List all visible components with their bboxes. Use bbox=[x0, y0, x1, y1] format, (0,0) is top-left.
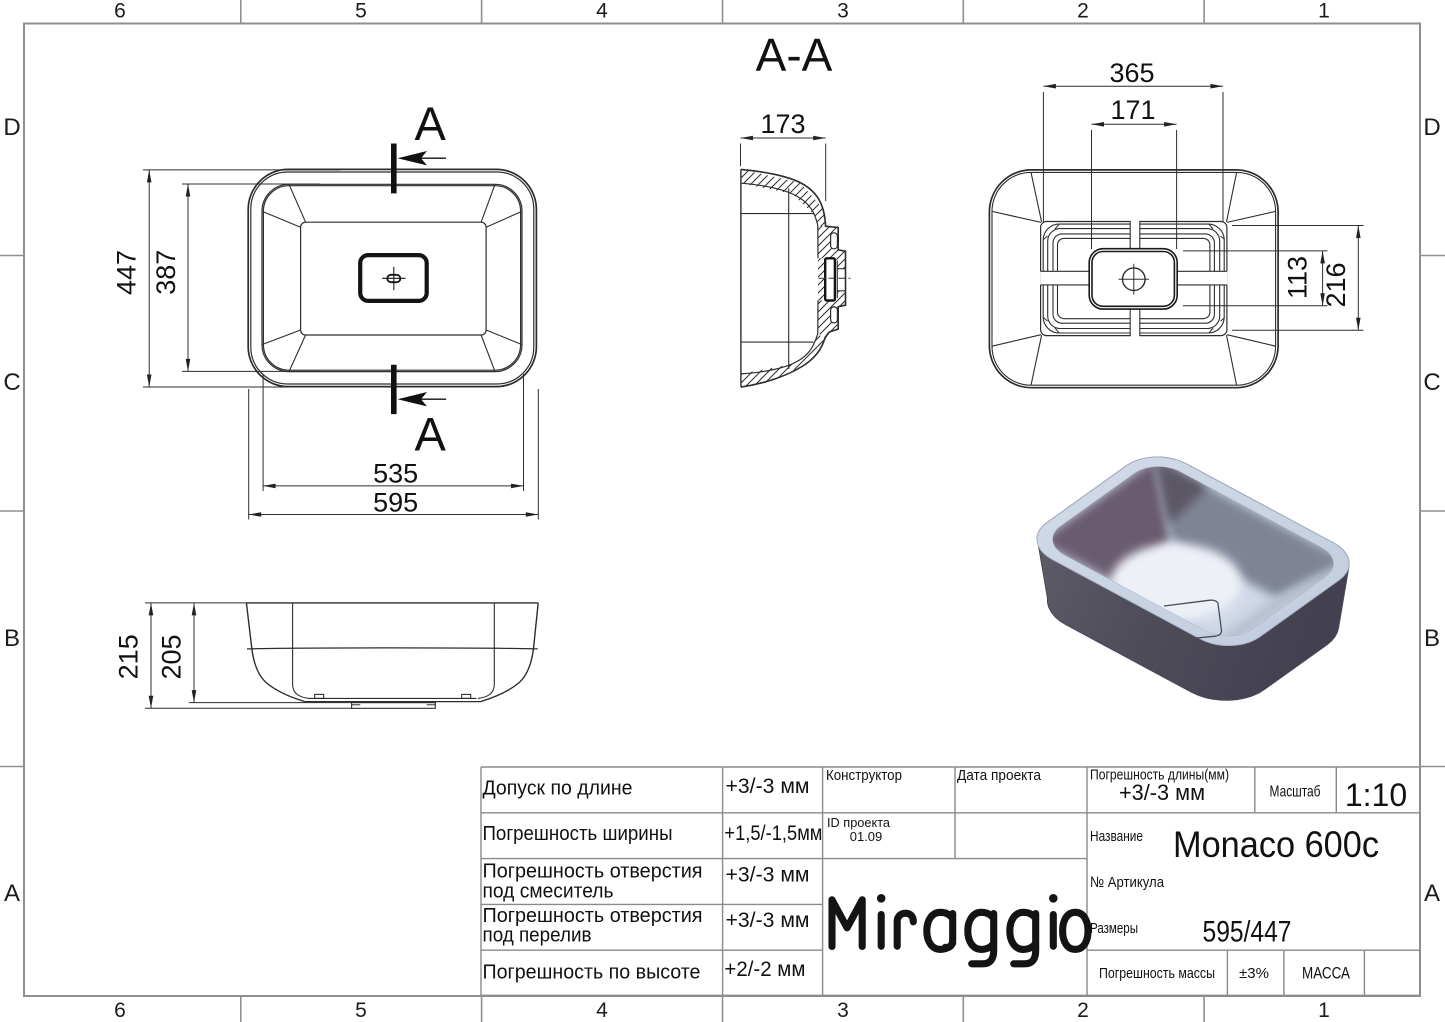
svg-text:365: 365 bbox=[1109, 58, 1154, 88]
svg-text:A-A: A-A bbox=[756, 29, 833, 81]
svg-text:2: 2 bbox=[1077, 999, 1089, 1022]
svg-text:3: 3 bbox=[837, 999, 849, 1022]
svg-text:+3/-3 мм: +3/-3 мм bbox=[1119, 780, 1205, 805]
svg-text:216: 216 bbox=[1321, 262, 1351, 307]
svg-text:+3/-3 мм: +3/-3 мм bbox=[726, 909, 810, 932]
svg-text:C: C bbox=[3, 369, 20, 396]
svg-text:A: A bbox=[415, 408, 447, 461]
svg-text:Допуск по длине: Допуск по длине bbox=[483, 777, 633, 800]
svg-text:Конструктор: Конструктор bbox=[826, 767, 902, 784]
svg-text:595: 595 bbox=[373, 488, 418, 518]
svg-text:±3%: ±3% bbox=[1239, 965, 1269, 982]
svg-text:+2/-2 мм: +2/-2 мм bbox=[724, 958, 805, 981]
svg-text:D: D bbox=[3, 114, 20, 141]
svg-text:171: 171 bbox=[1110, 95, 1155, 125]
svg-text:205: 205 bbox=[157, 634, 187, 679]
svg-text:1:10: 1:10 bbox=[1345, 777, 1407, 813]
svg-text:A: A bbox=[1424, 880, 1440, 907]
svg-text:Размеры: Размеры bbox=[1090, 920, 1138, 937]
svg-text:B: B bbox=[4, 625, 20, 652]
svg-text:01.09: 01.09 bbox=[850, 829, 883, 844]
svg-text:ID проекта: ID проекта bbox=[827, 815, 891, 830]
svg-text:3: 3 bbox=[837, 0, 849, 23]
svg-text:Название: Название bbox=[1090, 828, 1143, 845]
svg-text:387: 387 bbox=[151, 250, 181, 295]
svg-text:4: 4 bbox=[596, 0, 608, 23]
svg-text:2: 2 bbox=[1077, 0, 1089, 23]
svg-text:535: 535 bbox=[373, 458, 418, 488]
svg-text:+3/-3 мм: +3/-3 мм bbox=[726, 864, 810, 887]
svg-text:под перелив: под перелив bbox=[483, 924, 592, 947]
svg-text:5: 5 bbox=[355, 999, 367, 1022]
svg-text:МАССА: МАССА bbox=[1302, 964, 1351, 983]
svg-text:6: 6 bbox=[114, 0, 126, 23]
svg-text:5: 5 bbox=[355, 0, 367, 23]
svg-text:B: B bbox=[1424, 625, 1440, 652]
svg-text:Масштаб: Масштаб bbox=[1270, 784, 1321, 801]
svg-text:Дата проекта: Дата проекта bbox=[957, 767, 1042, 784]
svg-text:4: 4 bbox=[596, 999, 608, 1022]
svg-text:Monaco 600c: Monaco 600c bbox=[1173, 824, 1379, 865]
svg-text:A: A bbox=[415, 97, 447, 150]
svg-text:215: 215 bbox=[114, 634, 144, 679]
svg-text:A: A bbox=[4, 880, 20, 907]
svg-text:Погрешность по высоте: Погрешность по высоте bbox=[483, 960, 701, 983]
svg-text:+1,5/-1,5мм: +1,5/-1,5мм bbox=[724, 822, 822, 845]
svg-text:6: 6 bbox=[114, 999, 126, 1022]
svg-text:D: D bbox=[1423, 114, 1440, 141]
svg-text:173: 173 bbox=[760, 109, 805, 139]
svg-text:1: 1 bbox=[1318, 999, 1330, 1022]
svg-text:1: 1 bbox=[1318, 0, 1330, 23]
svg-text:под смеситель: под смеситель bbox=[483, 879, 614, 902]
svg-text:+3/-3 мм: +3/-3 мм bbox=[726, 775, 810, 798]
svg-text:Погрешность массы: Погрешность массы bbox=[1099, 965, 1215, 982]
svg-text:113: 113 bbox=[1283, 256, 1313, 299]
svg-text:C: C bbox=[1423, 369, 1440, 396]
svg-text:595/447: 595/447 bbox=[1203, 916, 1292, 949]
svg-text:447: 447 bbox=[112, 250, 142, 295]
svg-text:№ Артикула: № Артикула bbox=[1090, 874, 1165, 891]
svg-text:Погрешность ширины: Погрешность ширины bbox=[483, 822, 673, 845]
